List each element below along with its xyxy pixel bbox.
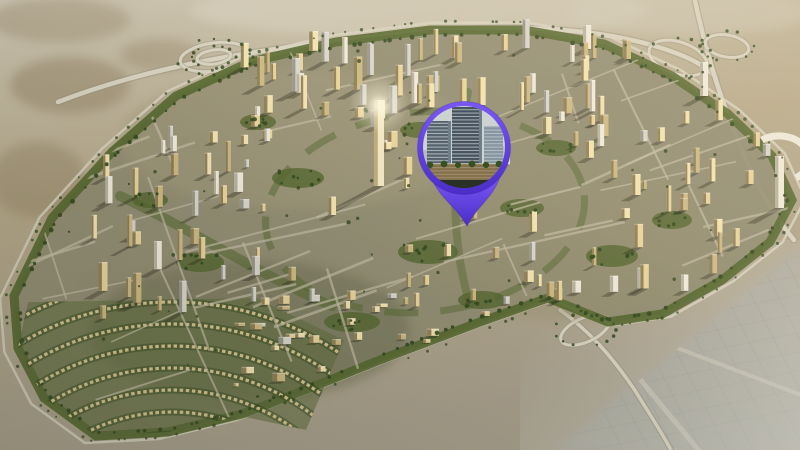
lighting-overlay xyxy=(0,0,800,450)
cool-shade-overlay xyxy=(0,0,800,450)
aerial-map xyxy=(0,0,800,450)
aerial-map-canvas xyxy=(0,0,800,450)
